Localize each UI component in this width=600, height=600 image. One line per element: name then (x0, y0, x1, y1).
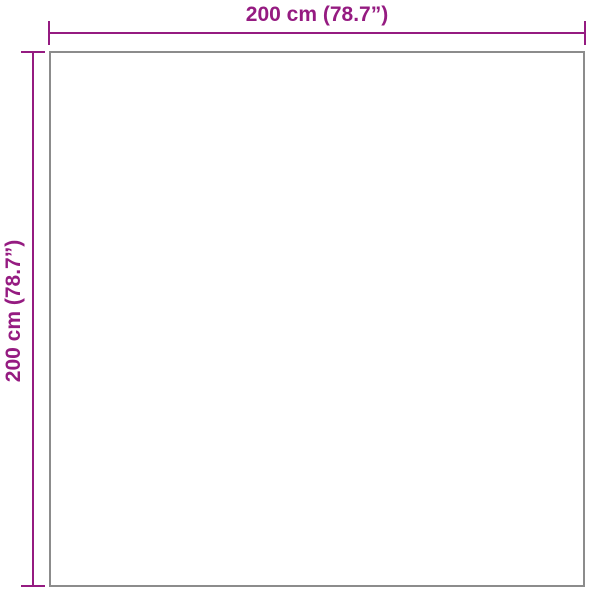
product-outline-square (49, 51, 585, 587)
top-dimension-label: 200 cm (78.7”) (246, 3, 388, 27)
left-dimension-label: 200 cm (78.7”) (2, 240, 26, 382)
top-dimension-tick-left (48, 21, 50, 45)
top-dimension-line (48, 32, 586, 34)
dimension-diagram-canvas: 200 cm (78.7”) 200 cm (78.7”) (0, 0, 600, 600)
left-dimension-line (32, 51, 34, 587)
left-dimension-tick-bottom (21, 585, 45, 587)
left-dimension-tick-top (21, 51, 45, 53)
top-dimension-tick-right (584, 21, 586, 45)
